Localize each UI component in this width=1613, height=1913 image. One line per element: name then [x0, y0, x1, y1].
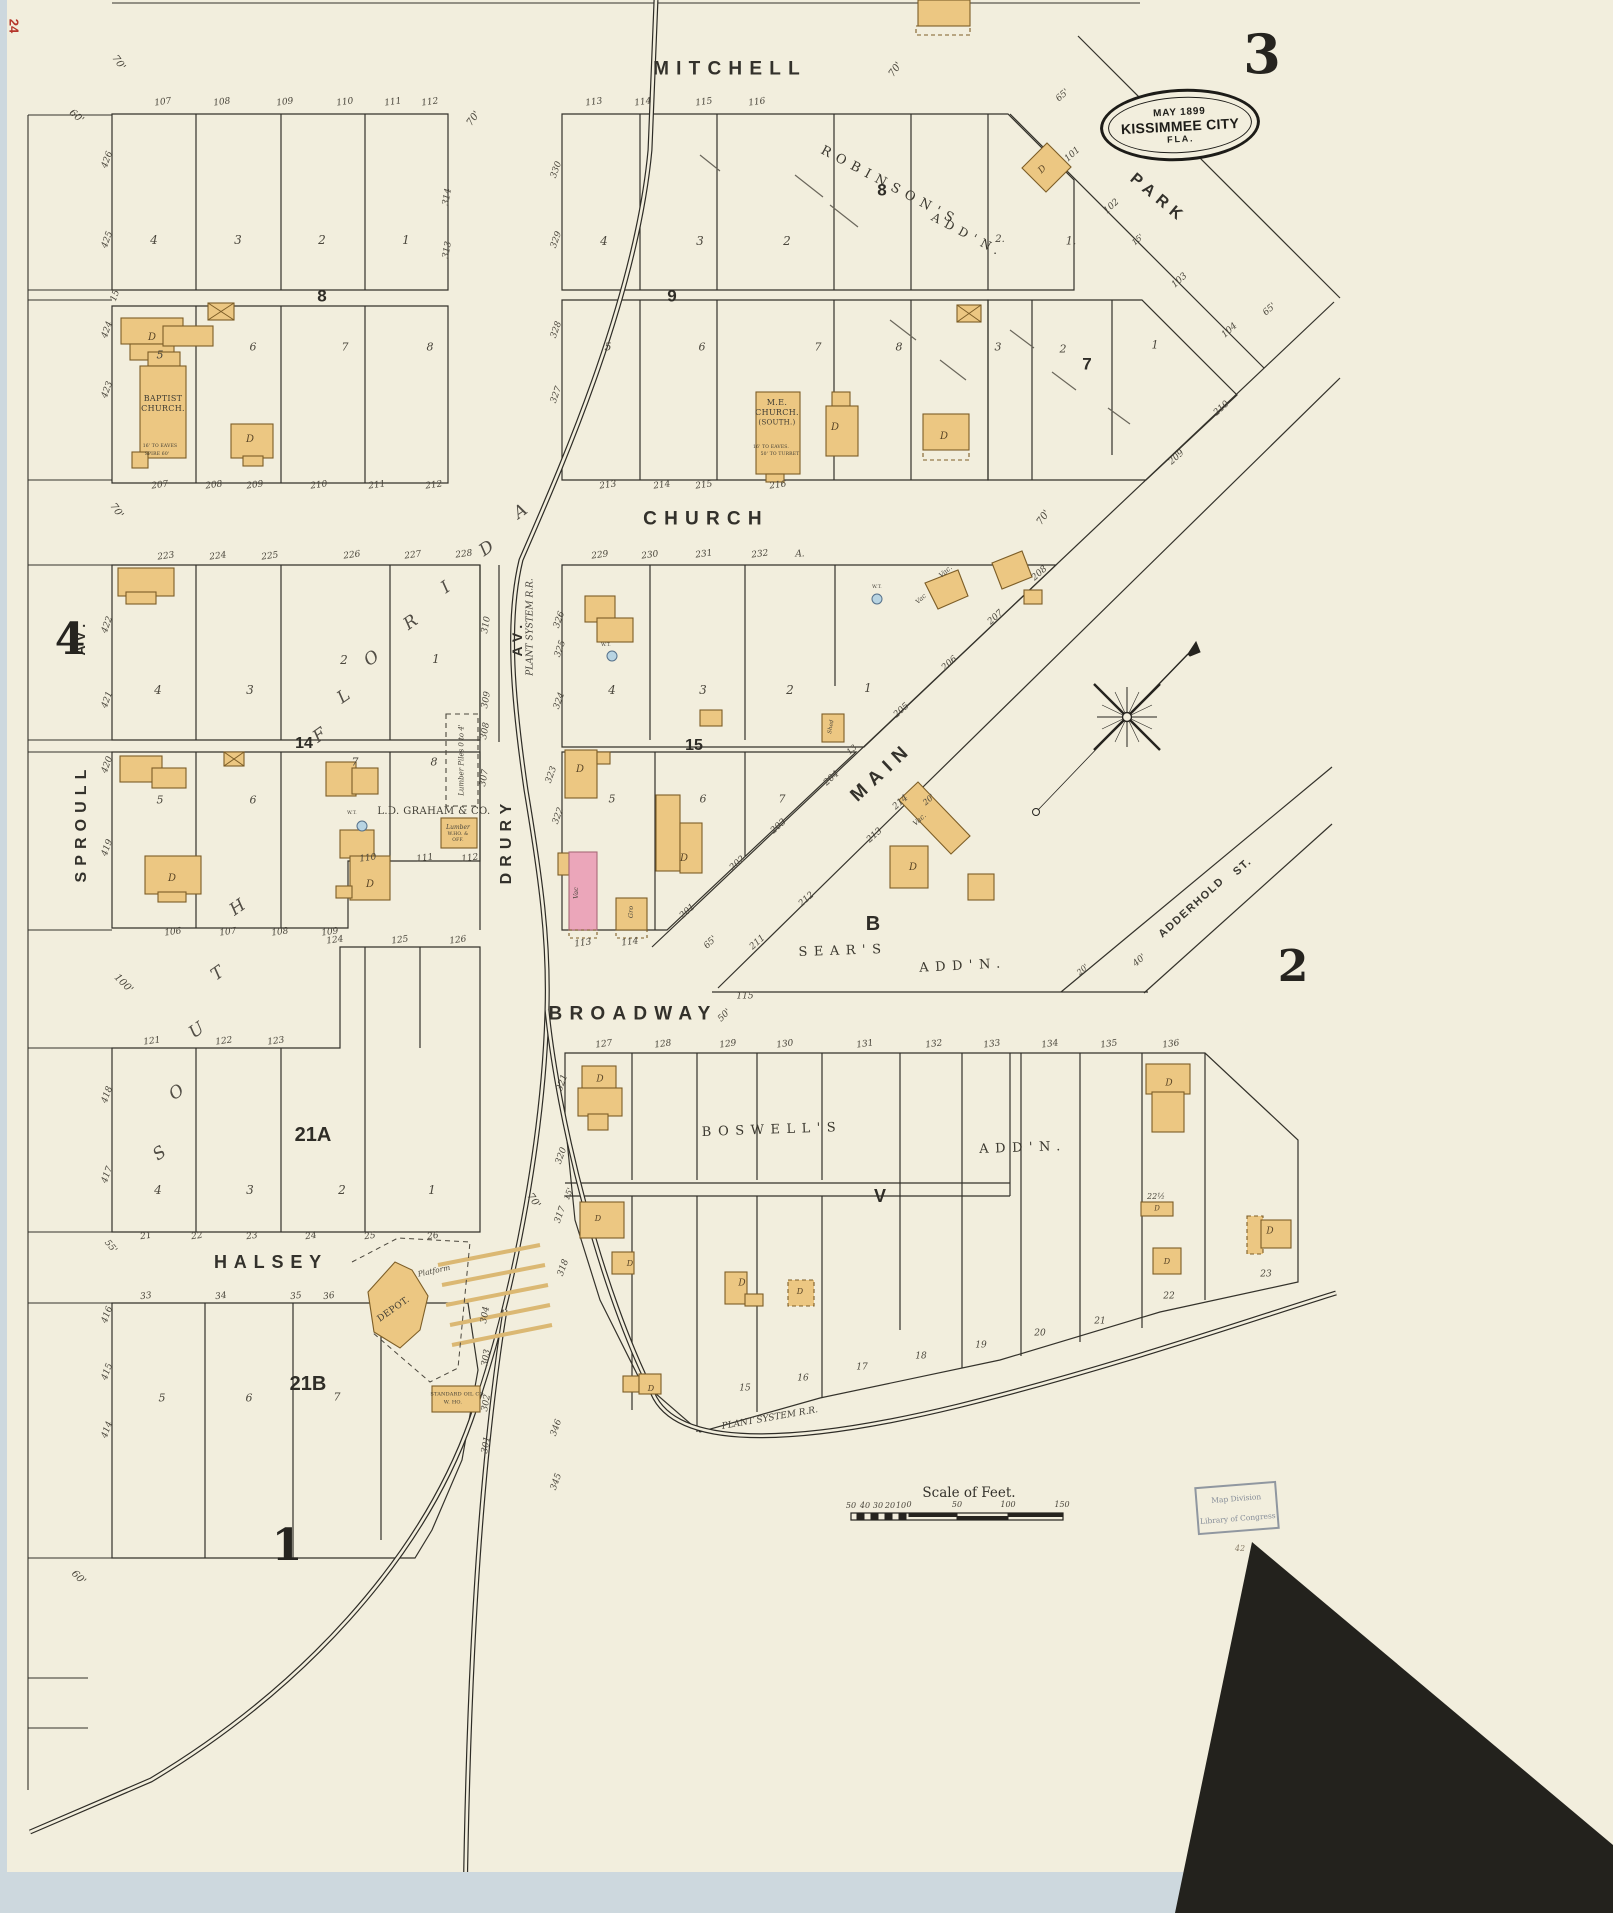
- sanborn-map-sheet: MAY 1899 KISSIMMEE CITY FLA. 3 Scale of …: [0, 0, 1613, 1913]
- page-corner-shadow: [0, 0, 1613, 1913]
